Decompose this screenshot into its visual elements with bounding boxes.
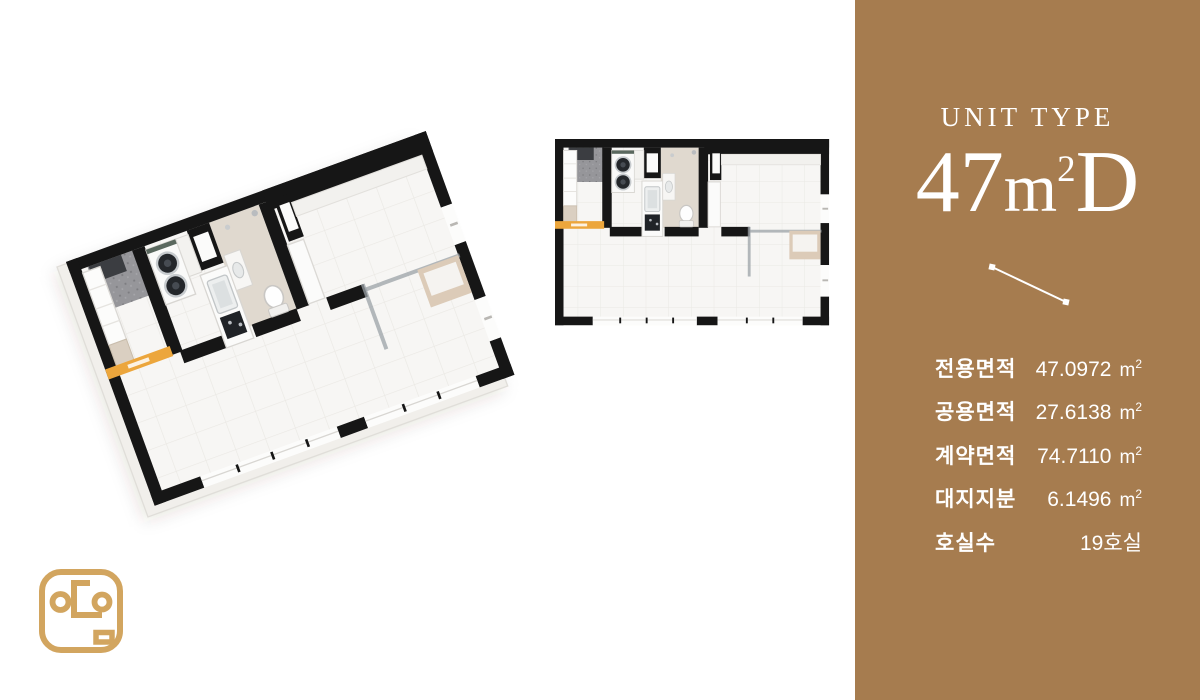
floorplan-2d <box>555 139 829 325</box>
area-value: 27.6138m2 <box>1036 400 1142 425</box>
unit-type-page: UNIT TYPE 47m2D 전용면적 47.0972m2 공용면적 27.6… <box>0 0 1200 700</box>
area-row: 계약면적 74.7110m2 <box>935 440 1142 483</box>
area-label: 계약면적 <box>935 440 1016 470</box>
area-row: 대지지분 6.1496m2 <box>935 483 1142 526</box>
info-panel: UNIT TYPE 47m2D 전용면적 47.0972m2 공용면적 27.6… <box>855 0 1200 700</box>
area-value: 74.7110m2 <box>1037 444 1142 469</box>
area-value: 19호실 <box>1080 527 1142 557</box>
area-row: 전용면적 47.0972m2 <box>935 353 1142 396</box>
unit-type-eyebrow: UNIT TYPE <box>855 102 1200 133</box>
area-row: 공용면적 27.6138m2 <box>935 396 1142 439</box>
area-label: 전용면적 <box>935 353 1016 383</box>
unit-type-sup: 2 <box>1057 148 1075 189</box>
unit-type-title: 47m2D <box>855 139 1200 227</box>
area-row: 호실수 19호실 <box>935 527 1142 570</box>
area-label: 호실수 <box>935 527 996 557</box>
leader-line-icon <box>973 252 1083 312</box>
area-label: 대지지분 <box>935 483 1016 513</box>
area-value: 47.0972m2 <box>1036 357 1142 382</box>
unit-type-suffix: D <box>1076 134 1140 231</box>
area-table: 전용면적 47.0972m2 공용면적 27.6138m2 계약면적 74.71… <box>855 353 1200 570</box>
floorplan-3d <box>54 131 514 522</box>
area-label: 공용면적 <box>935 396 1016 426</box>
unit-type-number: 47 <box>916 134 1004 231</box>
unit-type-meter: m <box>1004 150 1057 226</box>
ieum-logo <box>38 568 124 654</box>
area-value: 6.1496m2 <box>1047 487 1142 512</box>
